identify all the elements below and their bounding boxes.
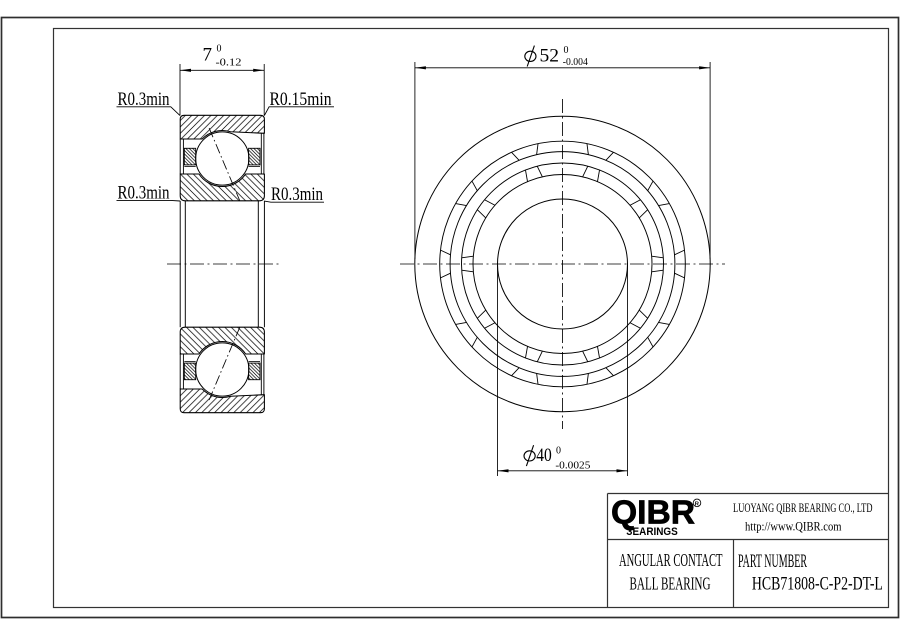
svg-text:HCB71808-C-P2-DT-L: HCB71808-C-P2-DT-L <box>752 575 883 595</box>
svg-text:http://www.QIBR.com: http://www.QIBR.com <box>745 519 842 534</box>
svg-text:BALL BEARING: BALL BEARING <box>630 574 711 594</box>
svg-text:-0.004: -0.004 <box>563 57 588 68</box>
svg-text:-0.12: -0.12 <box>216 58 242 69</box>
svg-text:0: 0 <box>556 445 561 456</box>
svg-text:ЗEARINGS: ЗEARINGS <box>626 526 678 538</box>
svg-text:QIBR: QIBR <box>611 494 695 531</box>
svg-text:0: 0 <box>217 44 222 55</box>
svg-text:LUOYANG QIBR BEARING CO., LTD: LUOYANG QIBR BEARING CO., LTD <box>733 500 873 515</box>
svg-text:PART NUMBER: PART NUMBER <box>738 552 807 572</box>
svg-text:-0.0025: -0.0025 <box>555 460 590 471</box>
svg-text:0: 0 <box>564 45 569 56</box>
svg-text:52: 52 <box>540 46 560 67</box>
svg-text:ANGULAR CONTACT: ANGULAR CONTACT <box>619 550 723 570</box>
svg-text:7: 7 <box>203 46 213 66</box>
svg-text:40: 40 <box>536 445 552 466</box>
